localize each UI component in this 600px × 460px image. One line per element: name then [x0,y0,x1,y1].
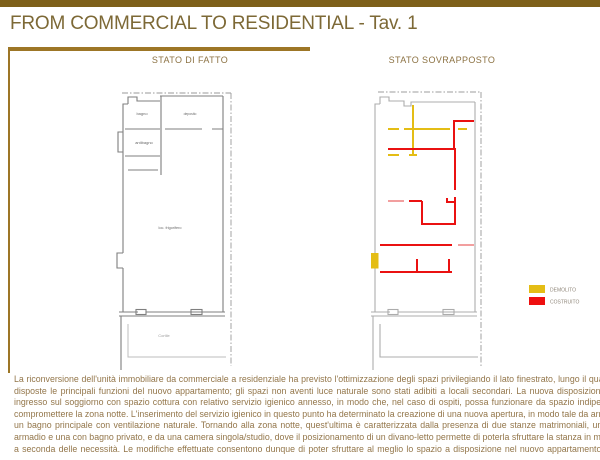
floor-plan-stato-sovrapposto [362,85,488,375]
title-underline-rule [8,47,310,51]
room-label-deposito: deposito [184,112,197,116]
room-label-loc-frigorifero: loc. frigorifero [158,226,181,230]
page-title: FROM COMMERCIAL TO RESIDENTIAL - Tav. 1 [10,13,417,35]
demolished-walls [388,105,467,155]
existing-walls-base [371,97,478,370]
boundary-dashdot-line [378,92,481,366]
new-walls [380,121,474,272]
courtyard-outline [128,324,226,357]
description-line: compromettere la zona notte. L'inserimen… [14,409,600,421]
room-label-cortile: Cortile [158,333,170,338]
plan-title-stato-sovrapposto: STATO SOVRAPPOSTO [362,55,522,65]
description-line: La riconversione dell'unità immobiliare … [14,374,600,386]
existing-walls [117,96,225,370]
floor-plan-stato-di-fatto: bagno antibagno deposito loc. frigorifer… [110,85,240,375]
description-line: armadio e una con bagno privato, e da un… [14,432,600,444]
slide: FROM COMMERCIAL TO RESIDENTIAL - Tav. 1 … [0,0,600,460]
room-label-bagno: bagno [136,111,148,116]
plan-title-stato-di-fatto: STATO DI FATTO [110,55,270,65]
description-line: disposte le principali funzioni del nuov… [14,386,600,398]
left-border-rule [8,47,10,373]
description-line: un bagno principale con ventilazione nat… [14,420,600,432]
legend-swatch-demolito [529,285,545,293]
top-border-bar [0,0,600,7]
description-paragraph: La riconversione dell'unità immobiliare … [14,374,600,455]
legend-label-demolito: DEMOLITO [550,288,576,294]
legend-label-costruito: COSTRUITO [550,300,579,306]
demolished-wall-niche [371,253,379,269]
legend-swatch-costruito [529,297,545,305]
room-label-antibagno: antibagno [135,140,153,145]
description-line: ingresso sul soggiorno con spazio cottur… [14,397,600,409]
legend: DEMOLITO COSTRUITO [522,282,600,310]
description-line: a seconda delle necessità. Le modifiche … [14,444,600,456]
